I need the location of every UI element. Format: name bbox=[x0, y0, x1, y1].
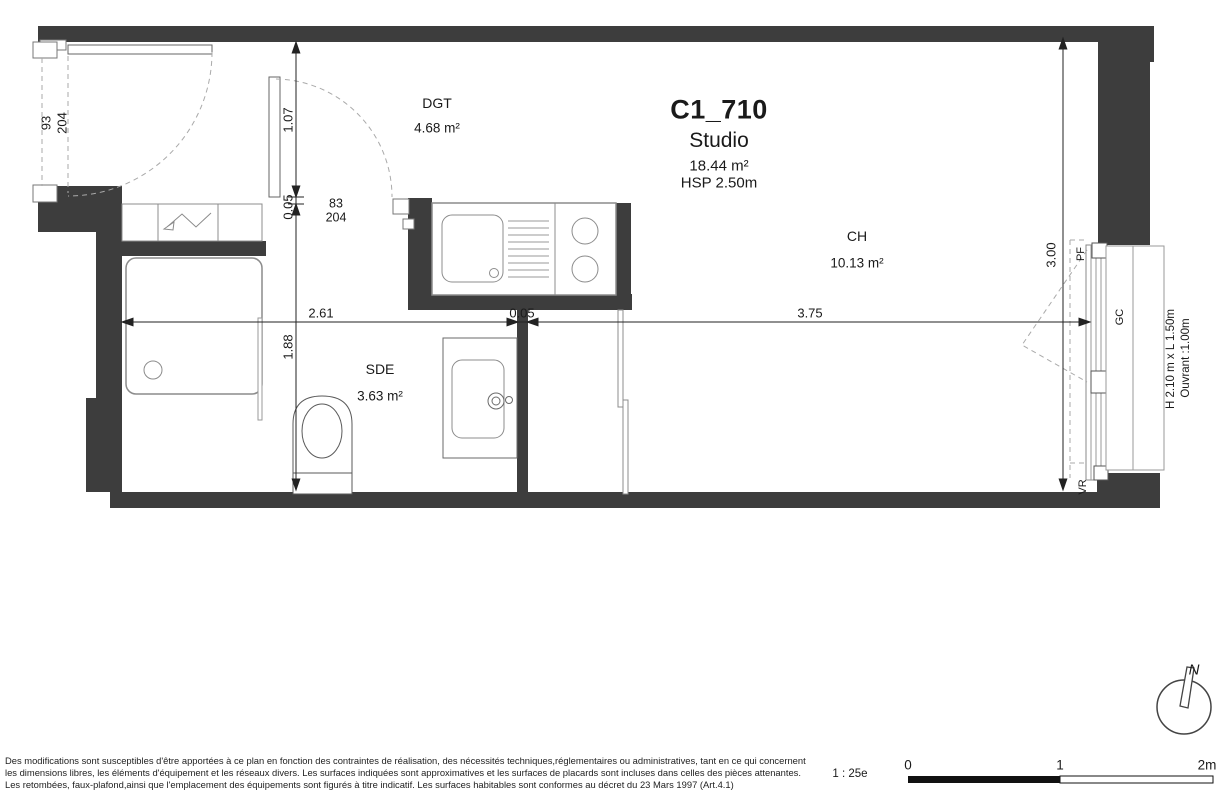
floor-plan: C1_710 Studio 18.44 m² HSP 2.50m DGT 4.6… bbox=[0, 0, 1228, 800]
shower-screen bbox=[258, 318, 262, 420]
window-label-vr: VR bbox=[1077, 479, 1089, 494]
sliding-panel bbox=[623, 400, 628, 494]
sde-door-width: 83 bbox=[329, 198, 343, 211]
room-area-ch: 10.13 m² bbox=[830, 256, 883, 271]
dim-left-width: 2.61 bbox=[308, 306, 333, 321]
dim-arrow bbox=[1059, 479, 1067, 490]
window-jamb-block bbox=[1091, 371, 1108, 393]
room-label-ch: CH bbox=[847, 228, 867, 244]
room-area-sde: 3.63 m² bbox=[357, 389, 403, 404]
toilet-bowl bbox=[302, 404, 342, 458]
dim-partition: 0.05 bbox=[509, 306, 534, 321]
north-compass bbox=[1157, 667, 1211, 734]
balcony-edge bbox=[1133, 246, 1164, 470]
room-area-dgt: 4.68 m² bbox=[414, 121, 460, 136]
scale-tick-0: 0 bbox=[904, 758, 912, 773]
dim-arrow bbox=[292, 42, 300, 53]
north-letter: N bbox=[1189, 662, 1200, 679]
entry-door-height: 204 bbox=[55, 112, 70, 134]
window-label-pf: PF bbox=[1075, 247, 1087, 261]
scale-bar-solid bbox=[908, 776, 1060, 783]
room-label-sde: SDE bbox=[366, 361, 395, 377]
sde-door-swing-arc bbox=[276, 79, 392, 197]
window-casement-projection bbox=[1070, 240, 1087, 478]
window-opening-text: Ouvrant :1.00m bbox=[1180, 318, 1192, 397]
faucet-icon bbox=[492, 397, 500, 405]
scale-tick-1: 1 bbox=[1056, 758, 1064, 773]
entry-door-swing-arc bbox=[68, 52, 212, 196]
sliding-panel bbox=[618, 310, 623, 407]
disclaimer-line-3: Les retombées, faux-plafond,ainsi que l'… bbox=[5, 779, 734, 790]
wall-top bbox=[38, 26, 1152, 42]
wall-kitchen-right bbox=[616, 203, 631, 303]
sde-door-height: 204 bbox=[326, 212, 347, 225]
window-label-gc: GC bbox=[1114, 309, 1126, 326]
entry-door-width: 93 bbox=[39, 116, 54, 130]
wall-right-upper bbox=[1098, 42, 1150, 245]
guardrail-gc bbox=[1106, 246, 1133, 470]
unit-area: 18.44 m² bbox=[689, 158, 748, 175]
sink-drain-icon bbox=[490, 269, 499, 278]
disclaimer-line-2: les dimensions libres, les éléments d'éq… bbox=[5, 767, 801, 778]
window-jamb-block bbox=[1092, 243, 1107, 258]
sde-door-leaf bbox=[269, 77, 280, 197]
entry-door-leaf bbox=[68, 45, 212, 54]
room-label-dgt: DGT bbox=[422, 95, 452, 111]
wall-left-sde bbox=[96, 232, 122, 402]
scale-bar-open bbox=[1060, 776, 1213, 783]
unit-type: Studio bbox=[689, 129, 749, 153]
toilet-tank bbox=[293, 473, 352, 494]
unit-ceiling: HSP 2.50m bbox=[681, 175, 757, 192]
sde-door-hinge bbox=[403, 219, 414, 229]
dim-ch-width: 3.75 bbox=[797, 306, 822, 321]
window-open-swing bbox=[1022, 250, 1087, 382]
scale-ratio: 1 : 25e bbox=[832, 768, 867, 780]
dim-right-depth: 3.00 bbox=[1044, 242, 1059, 267]
sde-door-strike-plate bbox=[393, 199, 409, 214]
wall-closet-bottom bbox=[122, 241, 266, 256]
window-size-text: H 2.10 m x L 1.50m bbox=[1165, 309, 1177, 409]
floor-plan-linework bbox=[0, 0, 1228, 800]
disclaimer-line-1: Des modifications sont susceptibles d'êt… bbox=[5, 755, 806, 766]
shower-drain-icon bbox=[144, 361, 162, 379]
dim-entry-height: 1.07 bbox=[281, 107, 296, 132]
burner-icon bbox=[572, 218, 598, 244]
wall-partition-sde-ch bbox=[517, 310, 528, 492]
entry-frame-post-top bbox=[33, 42, 57, 58]
dim-wall-v: 0.05 bbox=[281, 194, 296, 219]
closet bbox=[122, 204, 262, 241]
unit-code: C1_710 bbox=[670, 95, 768, 126]
dim-sde-depth: 1.88 bbox=[281, 334, 296, 359]
scale-tick-2m: 2m bbox=[1198, 758, 1217, 773]
scale-bar bbox=[908, 776, 1213, 783]
wall-left-foot bbox=[86, 398, 122, 492]
faucet-knob-icon bbox=[506, 397, 513, 404]
wall-bottom bbox=[110, 492, 1160, 508]
fixtures bbox=[33, 40, 1164, 494]
burner-icon bbox=[572, 256, 598, 282]
wall-kitchen-left bbox=[408, 198, 432, 300]
entry-frame-post-bottom bbox=[33, 185, 57, 202]
